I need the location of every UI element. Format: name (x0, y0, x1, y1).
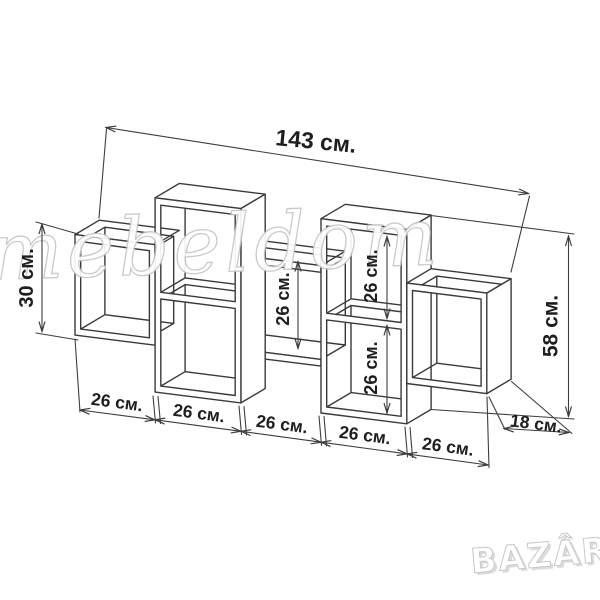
shelf-diagram-canvas: mebeldom 143 см. 30 см. 26 см. 26 см. 26… (0, 0, 600, 600)
label-bottom-width-5: 26 см. (421, 433, 475, 460)
label-right-lower-height: 26 см. (361, 341, 381, 394)
label-total-width: 143 см. (274, 124, 357, 158)
label-bottom-width-4: 26 см. (338, 422, 392, 449)
label-left-cube-height: 30 см. (16, 248, 38, 307)
label-depth: 18 см. (509, 410, 563, 437)
label-center-section-height: 26 см. (273, 272, 293, 325)
label-bottom-width-2: 26 см. (172, 400, 226, 427)
label-right-upper-height: 26 см. (361, 249, 381, 302)
label-bottom-width-3: 26 см. (255, 411, 309, 438)
label-overall-height: 58 см. (540, 295, 563, 357)
right-cube-side-face (487, 279, 511, 394)
brand-logo: BAZÂR BAZÂR (469, 529, 600, 585)
label-bottom-width-1: 26 см. (90, 389, 144, 416)
product-dimension-diagram: mebeldom 143 см. 30 см. 26 см. 26 см. 26… (0, 0, 600, 600)
